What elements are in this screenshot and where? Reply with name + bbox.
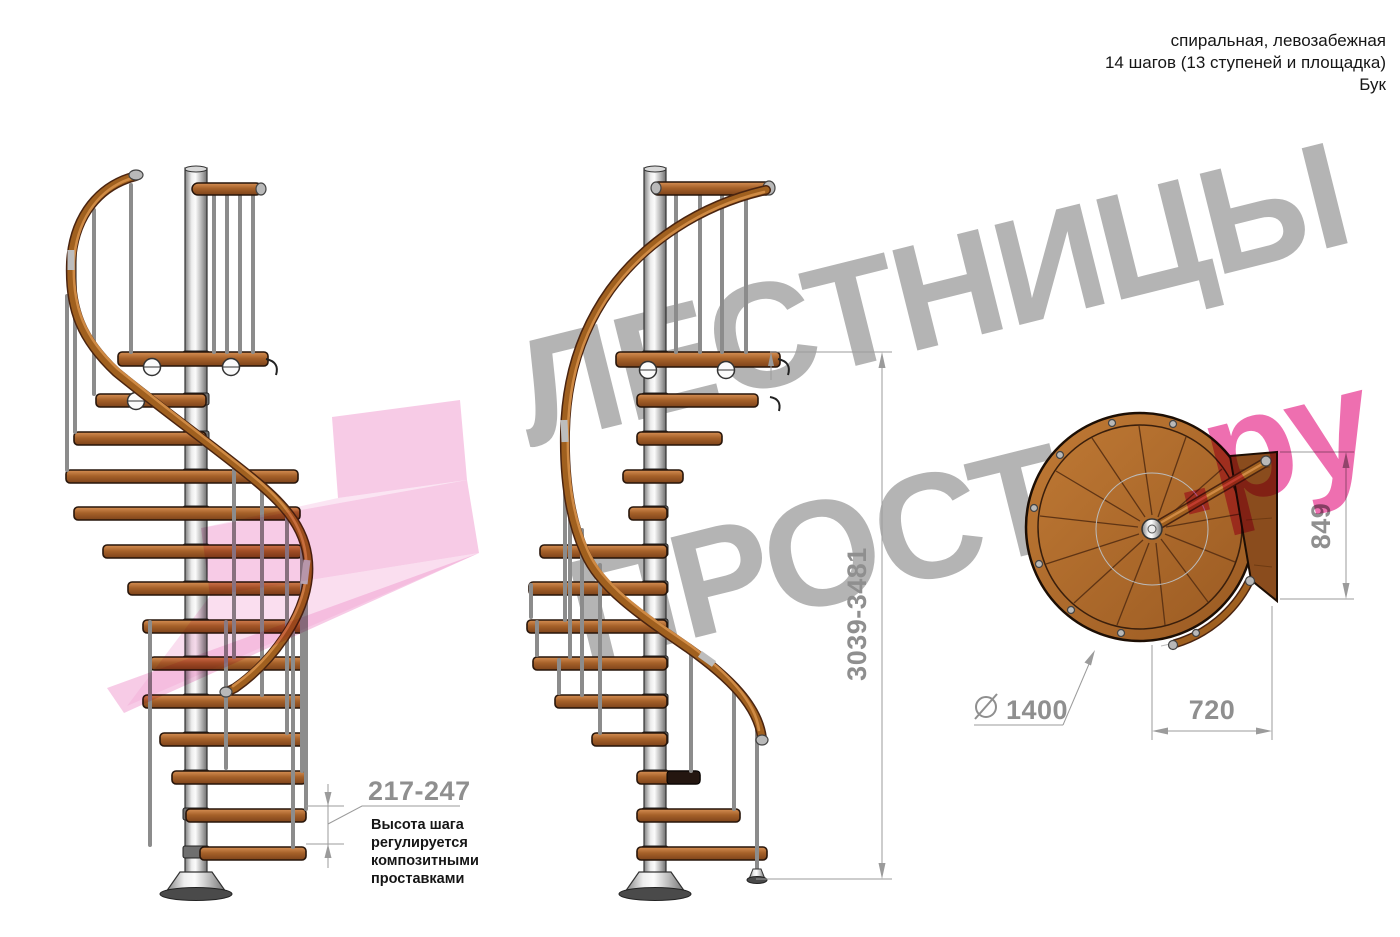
- watermark-suffix-pink: .ру: [1147, 335, 1387, 548]
- stair-steps-count: 14 шагов (13 ступеней и площадка): [1105, 52, 1386, 74]
- stair-material: Бук: [1105, 74, 1386, 96]
- title-block: спиральная, левозабежная 14 шагов (13 ст…: [1105, 30, 1386, 96]
- stair-type: спиральная, левозабежная: [1105, 30, 1386, 52]
- drawing-sheet: ЛЕСТНИЦЫ ПРОСТО.ру: [0, 0, 1400, 937]
